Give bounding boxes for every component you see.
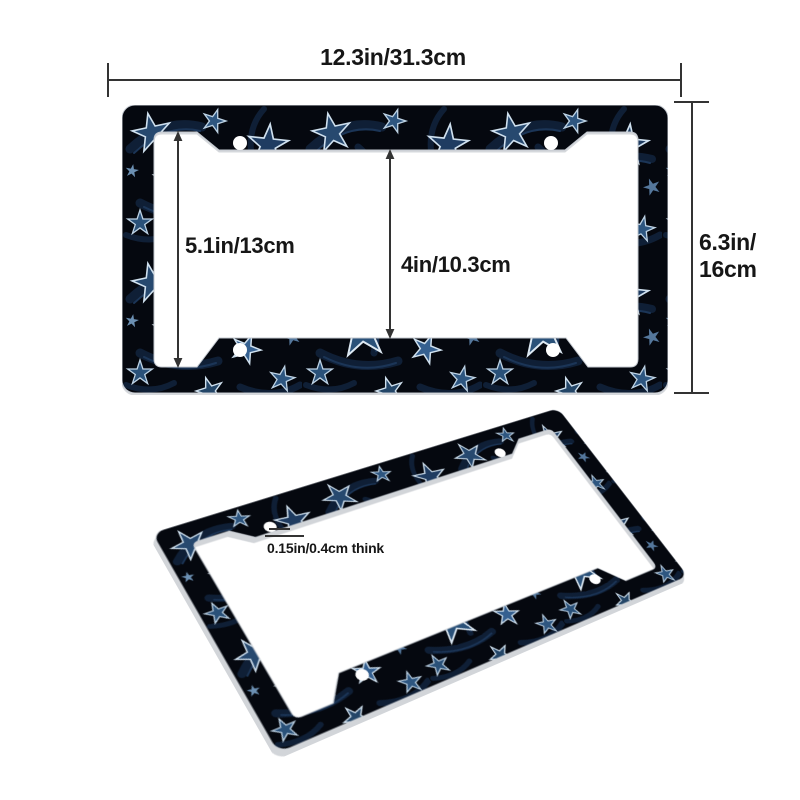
- product-dimension-image: 12.3in/31.3cm 6.3in/ 16cm 5.1in/13cm 4in…: [0, 0, 800, 800]
- height-dimension-label: 6.3in/ 16cm: [699, 229, 757, 283]
- thickness-dimension-label: 0.15in/0.4cm think: [267, 540, 384, 556]
- inner-height-dimension-label: 5.1in/13cm: [185, 233, 295, 259]
- frame-perspective-view-graphic: [152, 408, 688, 753]
- frame-perspective-view: [152, 408, 688, 753]
- height-dimension-label-line1: 6.3in/: [699, 229, 757, 256]
- height-dimension-label-line2: 16cm: [699, 256, 757, 283]
- width-dimension-label: 12.3in/31.3cm: [320, 44, 466, 71]
- plate-opening-dimension-label: 4in/10.3cm: [401, 252, 511, 278]
